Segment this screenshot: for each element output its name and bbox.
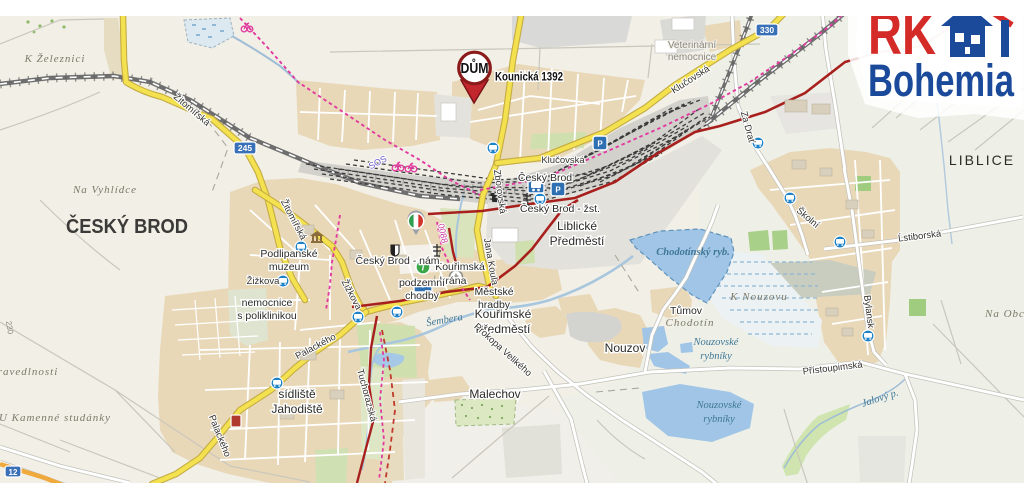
svg-text:Kouřimská: Kouřimská [435,261,485,273]
svg-text:ravedlnosti: ravedlnosti [0,366,58,378]
svg-text:K Nouzovu: K Nouzovu [729,291,788,303]
svg-text:s poliklinikou: s poliklinikou [237,310,297,322]
svg-text:Nouzovské: Nouzovské [693,337,740,348]
svg-text:Veterinární: Veterinární [668,40,717,51]
svg-text:Český Brod: Český Brod [518,171,572,184]
svg-text:330: 330 [760,25,774,35]
svg-text:ČESKÝ BROD: ČESKÝ BROD [66,214,188,238]
svg-text:Tůmov: Tůmov [670,305,703,317]
svg-text:LIBLICE: LIBLICE [949,152,1015,168]
svg-text:Nouzovské: Nouzovské [696,400,743,411]
svg-text:Chodotín: Chodotín [666,317,715,329]
svg-text:Český Brod - nám.: Český Brod - nám. [356,254,443,267]
svg-text:Podlipanské: Podlipanské [260,248,317,260]
svg-text:245: 245 [238,143,252,153]
svg-text:Český Brod - žst.: Český Brod - žst. [520,202,600,215]
svg-text:rybníky: rybníky [700,351,732,362]
svg-text:Bohemia: Bohemia [868,55,1015,106]
svg-text:U Kamenné studánky: U Kamenné studánky [0,412,111,424]
svg-text:sídliště: sídliště [278,387,316,401]
svg-text:Malechov: Malechov [469,387,520,401]
svg-text:DŮM: DŮM [461,58,489,77]
svg-text:muzeum: muzeum [269,261,310,273]
svg-text:Městské: Městské [474,286,513,298]
svg-text:Nouzov: Nouzov [605,341,646,355]
svg-text:P: P [555,186,561,195]
svg-text:12: 12 [9,468,18,477]
svg-text:Na Vyhlídce: Na Vyhlídce [72,184,137,196]
svg-text:Žižkova: Žižkova [247,276,280,287]
svg-text:Liblické: Liblické [557,219,597,233]
svg-text:podzemní: podzemní [399,277,445,289]
svg-text:hradby: hradby [478,299,511,311]
svg-text:Klučovská: Klučovská [541,155,585,166]
svg-text:nemocnice: nemocnice [668,52,717,63]
svg-text:Chodotínský ryb.: Chodotínský ryb. [656,247,730,258]
svg-text:Jahodiště: Jahodiště [271,402,323,416]
svg-text:chodby: chodby [405,290,440,302]
svg-text:Kounická 1392: Kounická 1392 [495,72,563,84]
svg-text:K Železnici: K Železnici [24,53,86,65]
svg-text:Na Obc: Na Obc [984,308,1024,320]
svg-text:rybníky: rybníky [703,414,735,425]
svg-text:P: P [597,140,603,149]
svg-text:nemocnice: nemocnice [242,297,293,309]
svg-text:Předměstí: Předměstí [550,234,605,248]
